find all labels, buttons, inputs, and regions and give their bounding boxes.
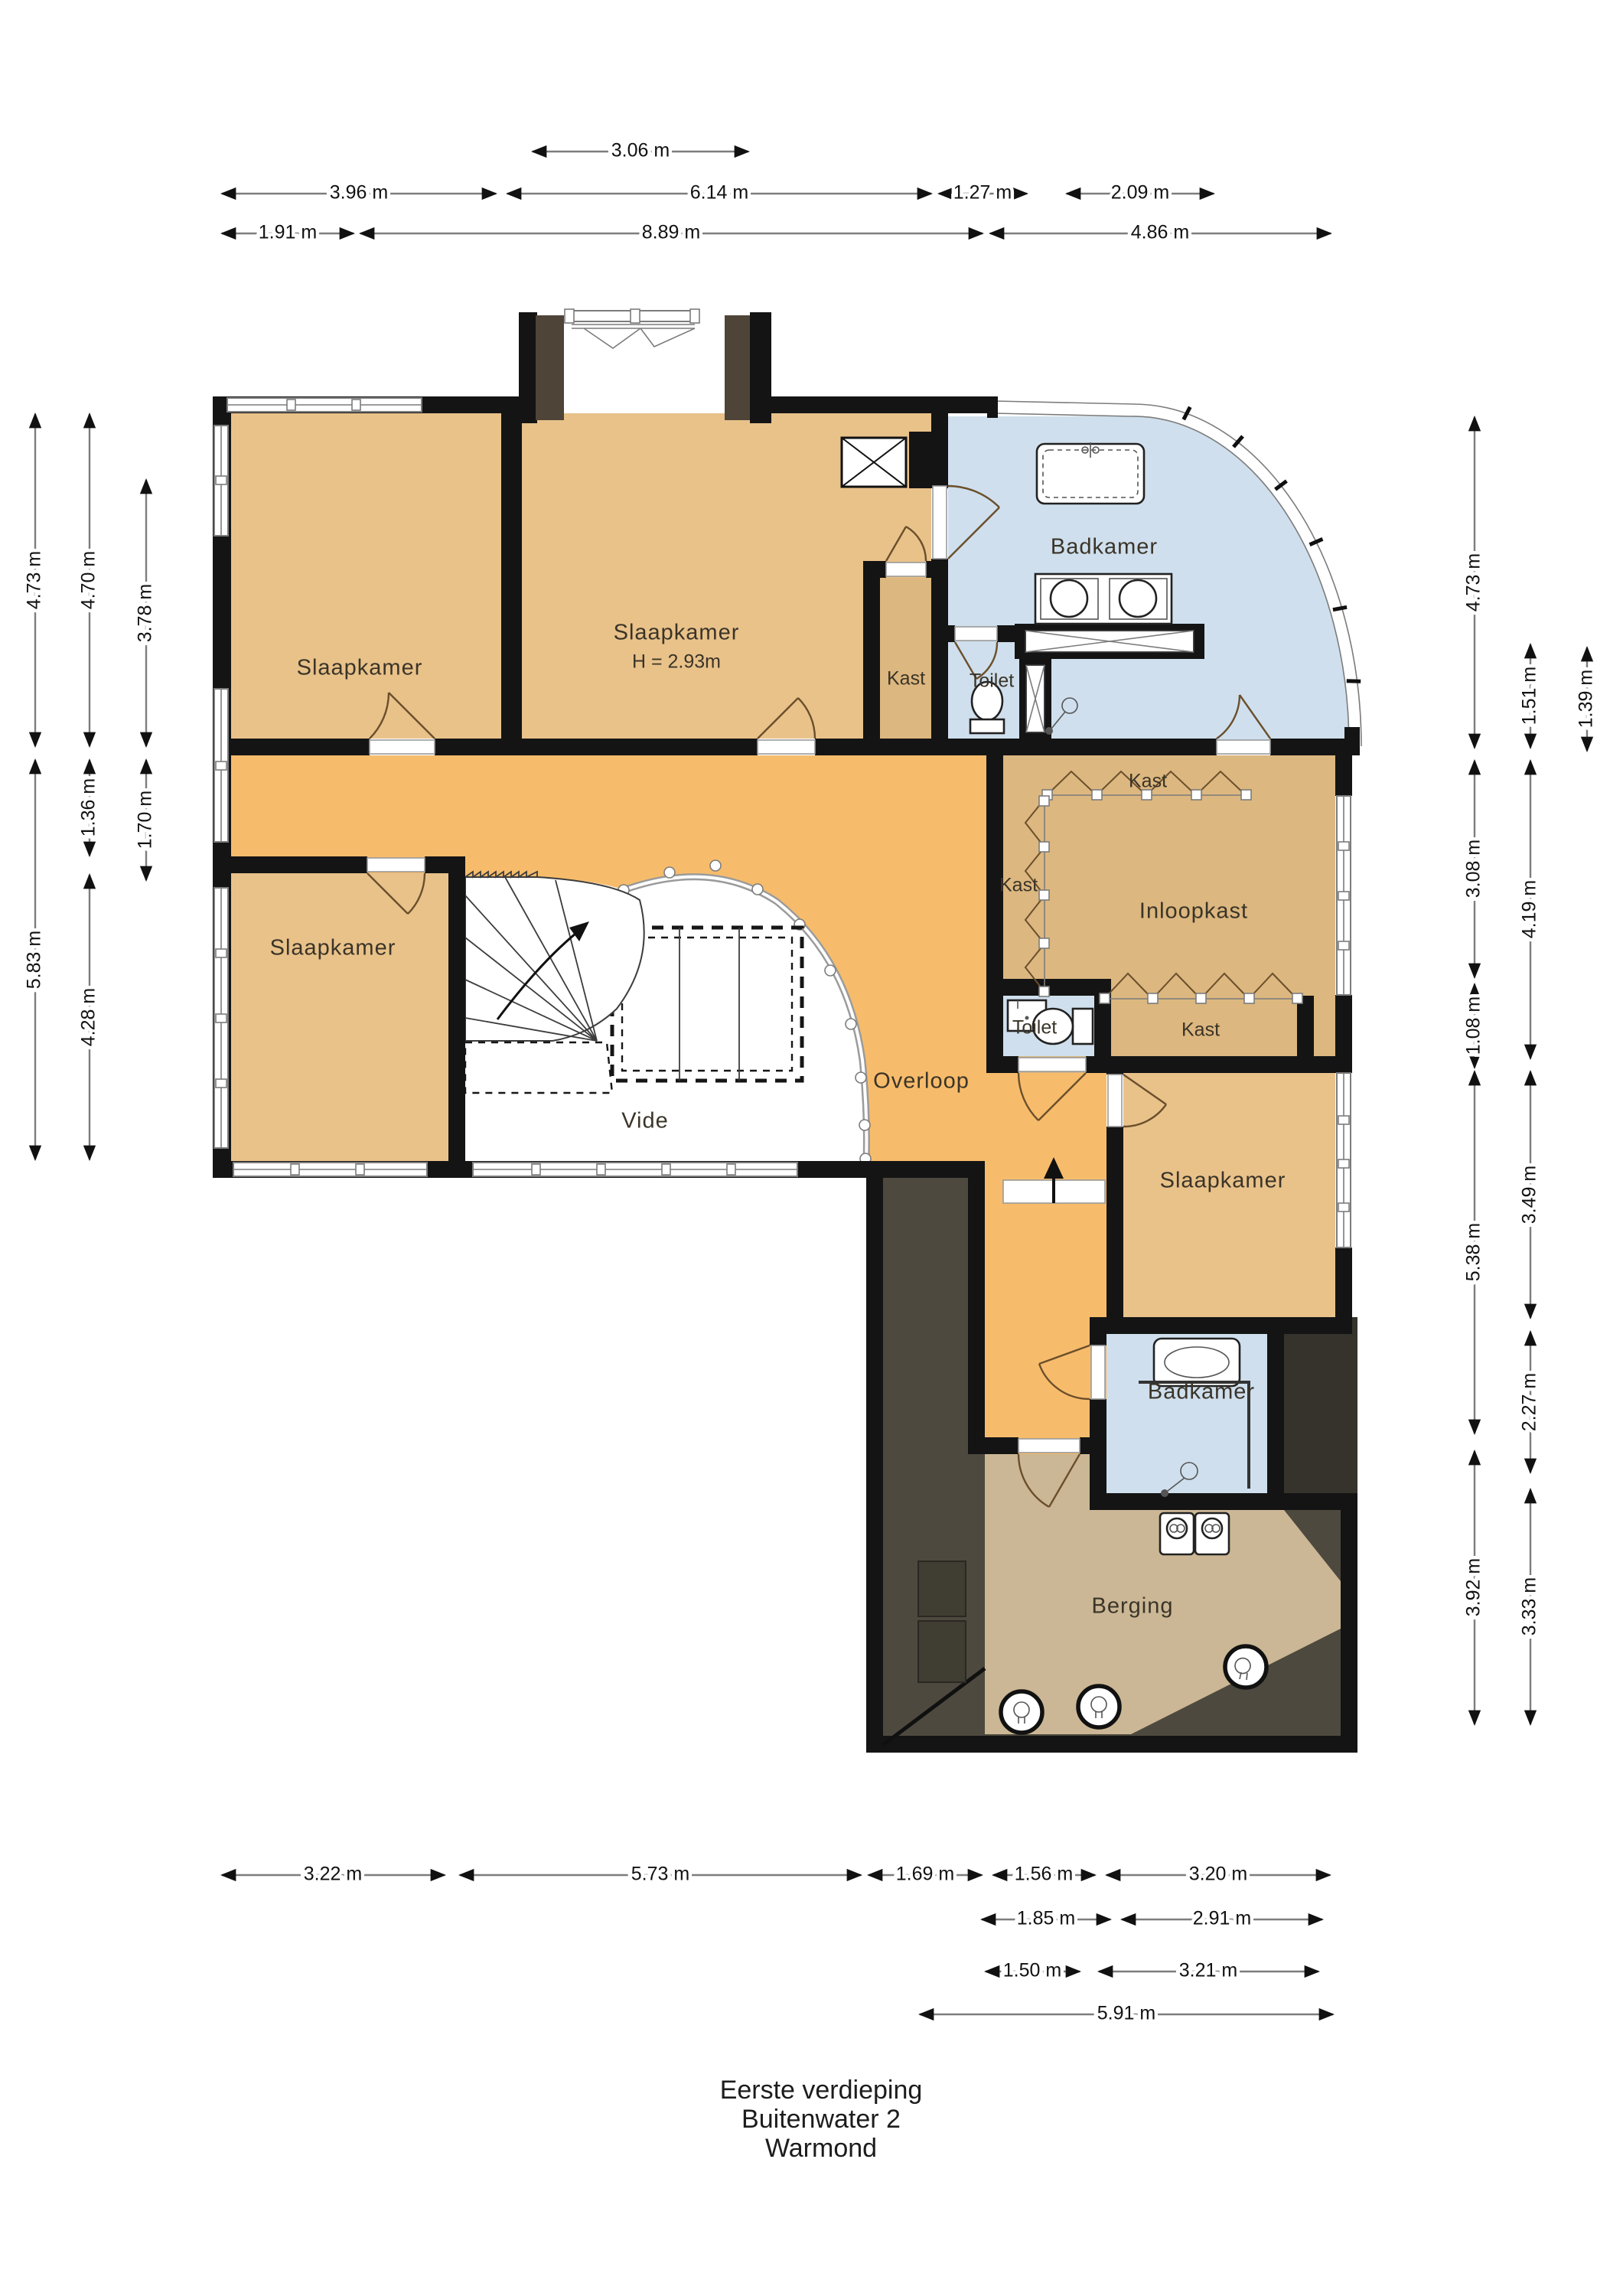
- dimension-line: 2.91 m: [1122, 1908, 1322, 1929]
- dimension-line: 4.73 m: [1463, 417, 1484, 748]
- window: [233, 1163, 427, 1176]
- dimension-line: 1.50 m: [986, 1960, 1080, 1981]
- room-label-height-note: H = 2.93m: [632, 651, 721, 673]
- title-floor: Eerste verdieping: [720, 2076, 923, 2105]
- room-label-badkamer-s: Badkamer: [1148, 1380, 1255, 1404]
- dimension-line: 4.19 m: [1519, 761, 1540, 1058]
- dimension-line: 1.69 m: [869, 1864, 982, 1885]
- bay-column-left: [536, 315, 564, 420]
- dimension-line: 4.28 m: [78, 875, 99, 1159]
- double-sink-icon: [1035, 574, 1172, 624]
- svg-text:1.85 m: 1.85 m: [1017, 1908, 1075, 1929]
- dimension-line: 3.78 m: [135, 480, 156, 746]
- svg-text:4.86 m: 4.86 m: [1131, 222, 1189, 243]
- dimension-line: 3.33 m: [1519, 1489, 1540, 1724]
- svg-text:3.96 m: 3.96 m: [330, 182, 388, 204]
- svg-text:2.91 m: 2.91 m: [1193, 1908, 1251, 1929]
- equipment-unit: [918, 1621, 966, 1682]
- dimension-line: 3.20 m: [1106, 1864, 1330, 1885]
- bay-window: [565, 309, 699, 348]
- skylight-icon: [1225, 1646, 1266, 1688]
- svg-text:1.51 m: 1.51 m: [1519, 667, 1540, 725]
- dimension-line: 5.91 m: [920, 2003, 1333, 2024]
- dimension-line: 1.91 m: [222, 222, 354, 243]
- room-label-toilet-n: Toilet: [970, 670, 1014, 692]
- svg-text:1.91 m: 1.91 m: [259, 222, 317, 243]
- dimension-line: 3.92 m: [1463, 1451, 1484, 1724]
- dimension-line: 6.14 m: [507, 182, 931, 204]
- dimension-line: 3.08 m: [1463, 761, 1484, 977]
- dimension-line: 3.06 m: [533, 140, 748, 161]
- svg-text:2.09 m: 2.09 m: [1111, 182, 1169, 204]
- washer-icon: [1195, 1513, 1229, 1554]
- room-label-slaapkamer-w: Slaapkamer: [270, 936, 396, 960]
- svg-text:1.39 m: 1.39 m: [1576, 670, 1597, 728]
- title-address: Buitenwater 2: [741, 2105, 901, 2134]
- dimension-line: 4.86 m: [990, 222, 1331, 243]
- bay-column-right: [725, 315, 750, 420]
- svg-text:5.91 m: 5.91 m: [1097, 2003, 1155, 2024]
- skylight-icon: [1078, 1686, 1119, 1727]
- room-label-slaapkamer-e: Slaapkamer: [1160, 1169, 1286, 1193]
- room-label-kast-onder: Kast: [1181, 1019, 1220, 1041]
- dimension-line: 1.56 m: [993, 1864, 1095, 1885]
- dimension-line: 3.96 m: [222, 182, 496, 204]
- svg-text:3.08 m: 3.08 m: [1463, 840, 1484, 898]
- svg-text:1.69 m: 1.69 m: [896, 1864, 954, 1885]
- dimension-line: 5.83 m: [24, 760, 45, 1159]
- bathtub-icon: [1037, 442, 1144, 504]
- dimension-line: 1.27 m: [939, 182, 1027, 204]
- svg-text:5.38 m: 5.38 m: [1463, 1223, 1484, 1281]
- room-label-toilet-midden: Toilet: [1012, 1017, 1057, 1039]
- room-label-kast-slaapkamer: Kast: [887, 668, 925, 690]
- duct-box-icon: [842, 438, 906, 487]
- svg-text:6.14 m: 6.14 m: [690, 182, 748, 204]
- window: [1337, 1073, 1351, 1247]
- floorplan-drawing: Slaapkamer Slaapkamer H = 2.93m Badkamer…: [0, 0, 1623, 2296]
- room-label-kast-boven: Kast: [1129, 771, 1167, 792]
- berging-roof-charcoal: [1284, 1317, 1357, 1510]
- room-label-kast-links: Kast: [999, 875, 1038, 896]
- title-city: Warmond: [765, 2134, 877, 2163]
- svg-text:4.28 m: 4.28 m: [78, 988, 99, 1046]
- equipment-unit: [918, 1561, 966, 1616]
- dimension-line: 5.38 m: [1463, 1071, 1484, 1433]
- dimension-line: 3.49 m: [1519, 1071, 1540, 1318]
- room-label-slaapkamer-nw: Slaapkamer: [297, 656, 423, 680]
- room-label-berging: Berging: [1092, 1594, 1174, 1619]
- svg-text:8.89 m: 8.89 m: [642, 222, 700, 243]
- dimension-line: 4.73 m: [24, 414, 45, 746]
- room-label-overloop: Overloop: [873, 1069, 970, 1094]
- title-block: Eerste verdieping Buitenwater 2 Warmond: [720, 2076, 923, 2163]
- window: [1337, 796, 1351, 995]
- room-label-slaapkamer-n: Slaapkamer: [614, 621, 740, 645]
- svg-text:3.49 m: 3.49 m: [1519, 1166, 1540, 1224]
- room-label-vide: Vide: [621, 1109, 669, 1133]
- dimension-line: 1.70 m: [135, 760, 156, 880]
- svg-text:3.22 m: 3.22 m: [304, 1864, 362, 1885]
- dimension-line: 3.21 m: [1099, 1960, 1318, 1981]
- window: [473, 1163, 797, 1176]
- svg-text:5.83 m: 5.83 m: [24, 931, 45, 989]
- dimension-line: 5.73 m: [460, 1864, 861, 1885]
- svg-text:4.19 m: 4.19 m: [1519, 880, 1540, 938]
- dimension-line: 1.36 m: [78, 760, 99, 856]
- window: [214, 689, 228, 842]
- svg-text:4.73 m: 4.73 m: [1463, 553, 1484, 612]
- svg-text:4.73 m: 4.73 m: [24, 551, 45, 609]
- dimension-line: 1.08 m: [1463, 984, 1484, 1068]
- dimension-line: 1.51 m: [1519, 644, 1540, 748]
- svg-text:1.36 m: 1.36 m: [78, 778, 99, 837]
- svg-text:1.50 m: 1.50 m: [1003, 1960, 1061, 1981]
- svg-text:2.27 m: 2.27 m: [1519, 1373, 1540, 1431]
- window: [214, 426, 228, 536]
- chimney-box-icon: [909, 432, 948, 488]
- svg-text:3.92 m: 3.92 m: [1463, 1558, 1484, 1616]
- room-label-inloopkast: Inloopkast: [1139, 899, 1248, 924]
- room-slaapkamer-w: [230, 873, 448, 1161]
- dimension-line: 1.39 m: [1576, 647, 1597, 751]
- dimension-line: 1.85 m: [982, 1908, 1110, 1929]
- floorplan-page: Slaapkamer Slaapkamer H = 2.93m Badkamer…: [0, 0, 1623, 2296]
- window: [227, 398, 422, 412]
- room-kast-slaapkamer: [880, 578, 931, 739]
- svg-text:3.21 m: 3.21 m: [1179, 1960, 1237, 1981]
- svg-text:1.56 m: 1.56 m: [1015, 1864, 1073, 1885]
- svg-text:3.06 m: 3.06 m: [611, 140, 670, 161]
- dimension-line: 2.27 m: [1519, 1332, 1540, 1473]
- dimension-line: 3.22 m: [222, 1864, 445, 1885]
- washer-icon: [1160, 1513, 1194, 1554]
- room-slaapkamer-nw: [230, 413, 501, 739]
- dimension-line: 2.09 m: [1067, 182, 1214, 204]
- svg-text:1.70 m: 1.70 m: [135, 791, 156, 849]
- svg-text:3.78 m: 3.78 m: [135, 584, 156, 642]
- svg-text:1.27 m: 1.27 m: [953, 182, 1012, 204]
- svg-text:3.33 m: 3.33 m: [1519, 1577, 1540, 1636]
- svg-text:3.20 m: 3.20 m: [1189, 1864, 1247, 1885]
- room-slaapkamer-e: [1123, 1073, 1335, 1317]
- dimension-line: 4.70 m: [78, 414, 99, 746]
- window: [214, 888, 228, 1148]
- dimension-line: 8.89 m: [360, 222, 983, 243]
- room-label-badkamer-n: Badkamer: [1051, 535, 1158, 559]
- skylight-icon: [1001, 1691, 1042, 1733]
- svg-text:1.08 m: 1.08 m: [1463, 996, 1484, 1055]
- svg-text:4.70 m: 4.70 m: [78, 551, 99, 609]
- svg-text:5.73 m: 5.73 m: [631, 1864, 689, 1885]
